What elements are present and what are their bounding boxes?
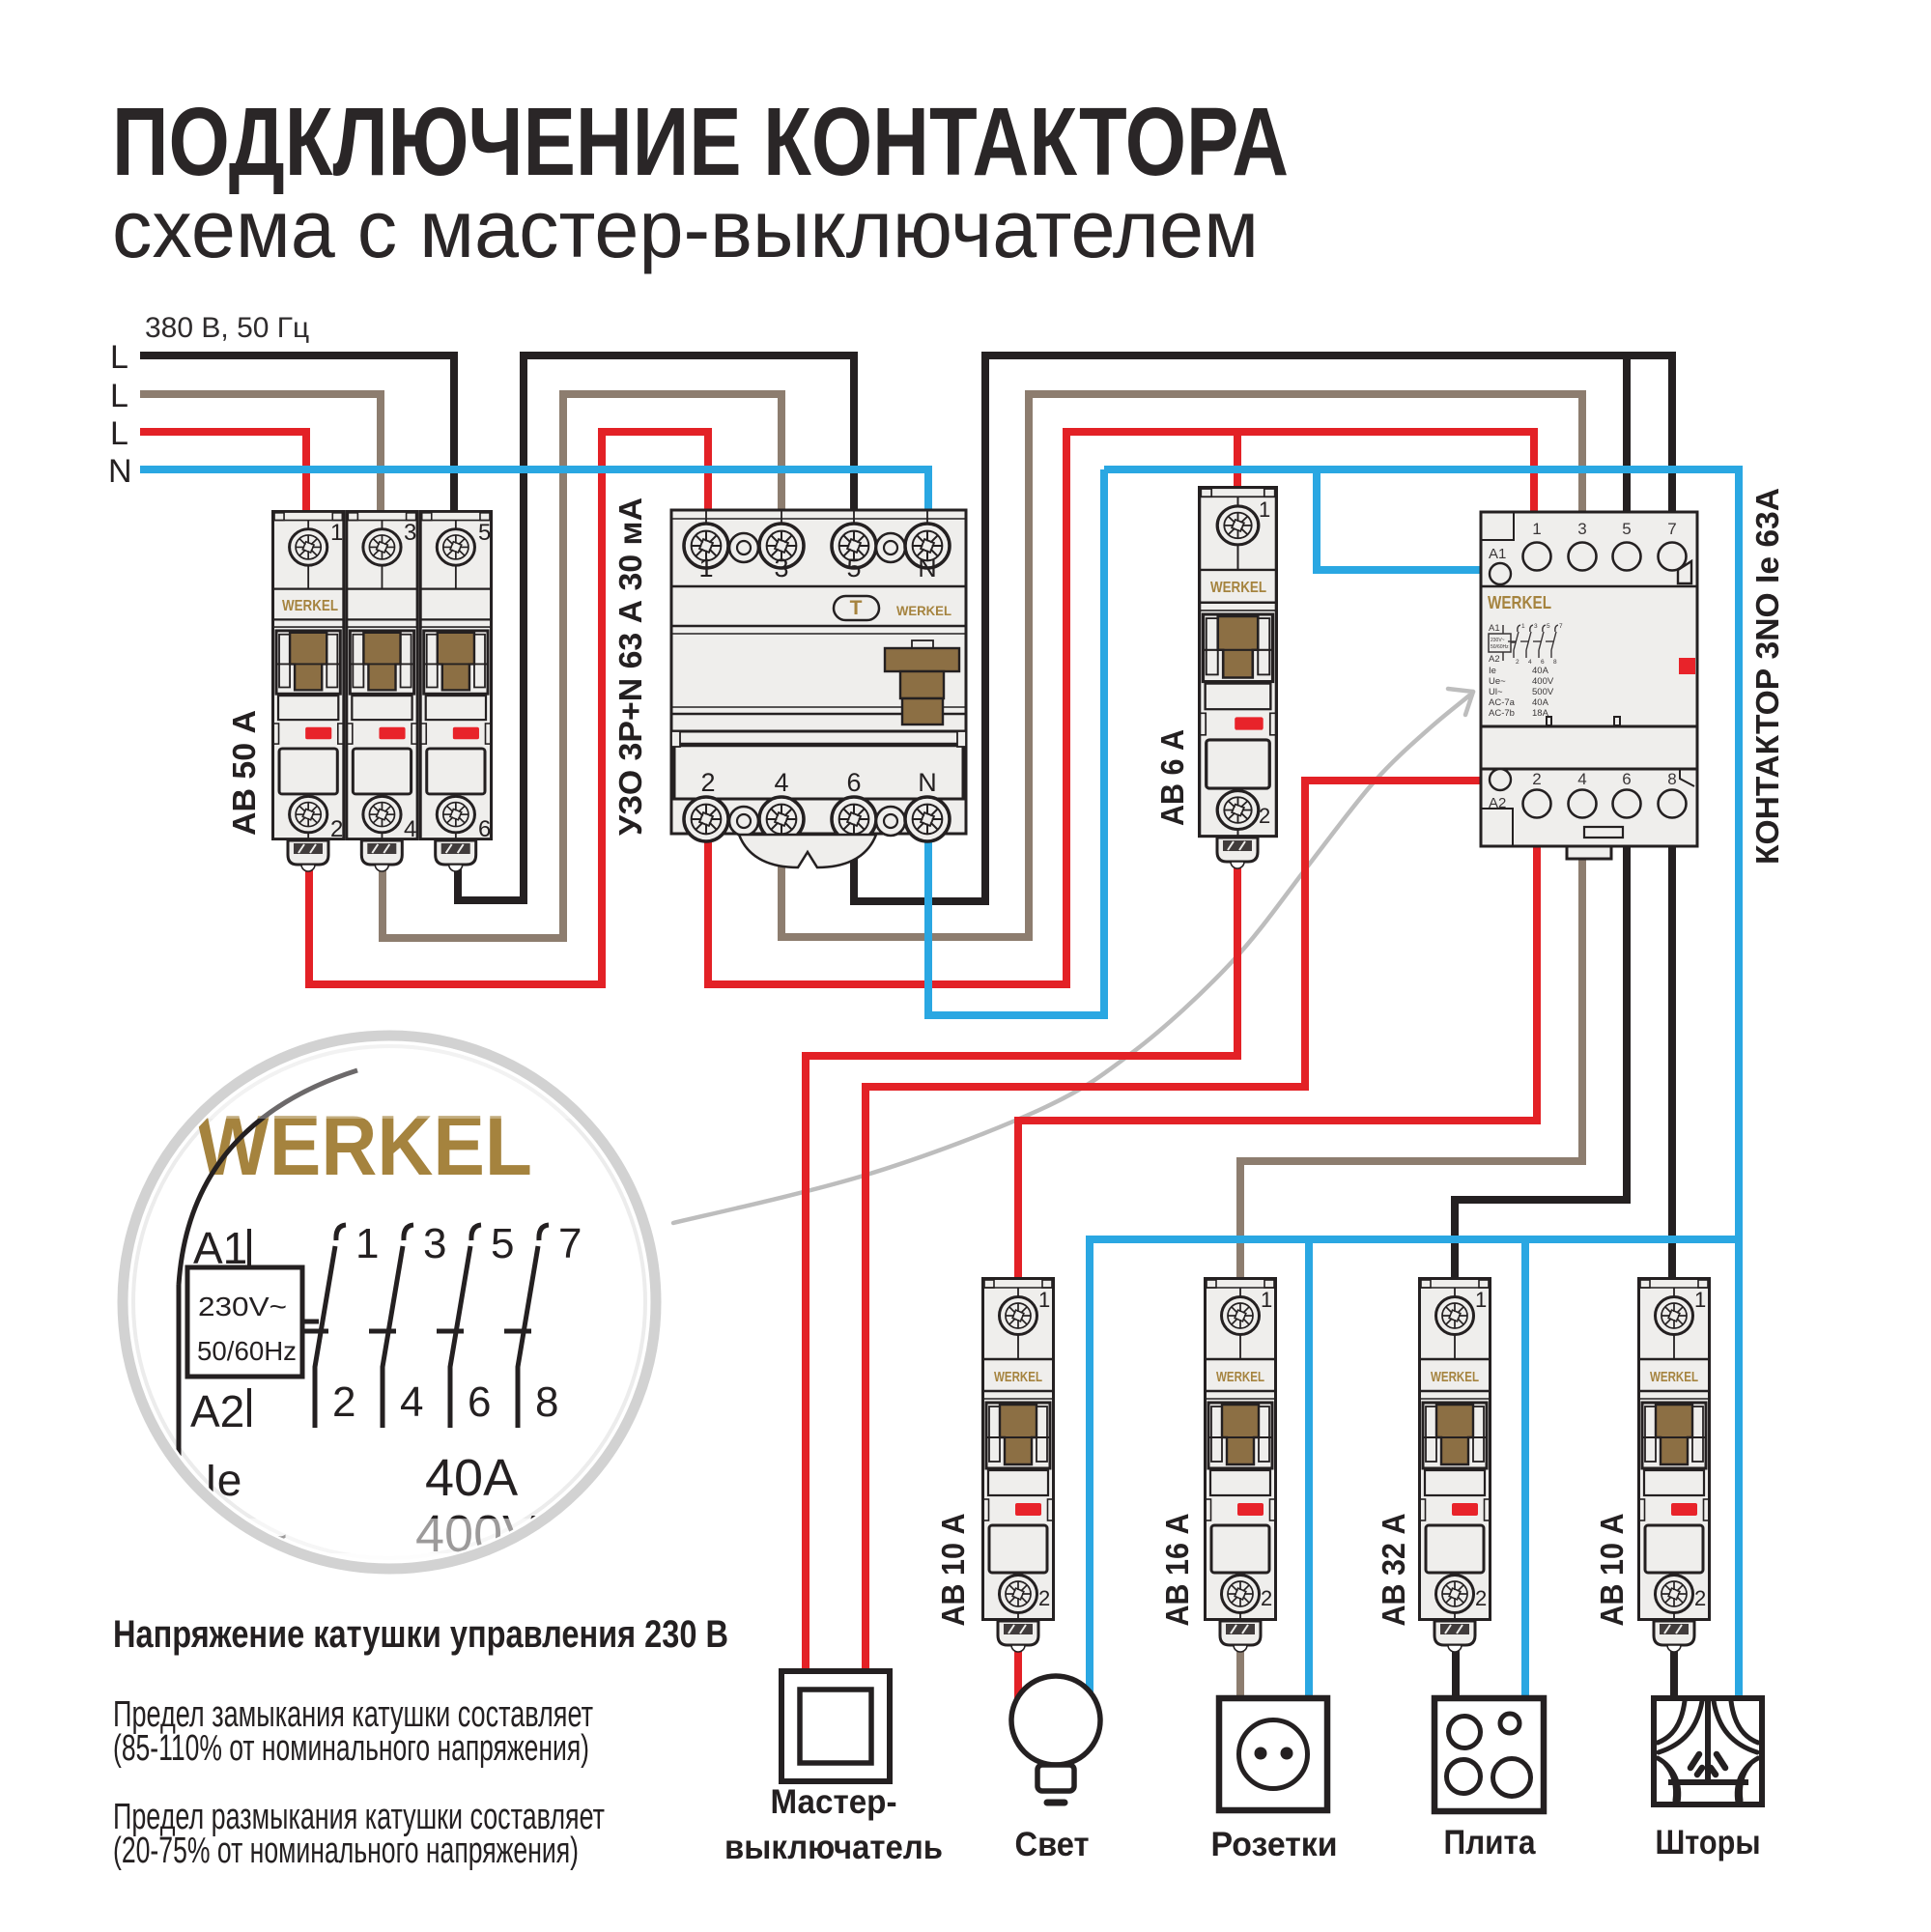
svg-text:Шторы: Шторы bbox=[1656, 1824, 1761, 1861]
svg-text:6: 6 bbox=[478, 816, 491, 842]
svg-text:1: 1 bbox=[1521, 623, 1525, 630]
svg-text:Розетки: Розетки bbox=[1211, 1826, 1338, 1863]
svg-text:A1: A1 bbox=[1489, 623, 1500, 634]
svg-text:Ie: Ie bbox=[1489, 666, 1496, 676]
svg-text:(20-75% от номинального напряж: (20-75% от номинального напряжения) bbox=[113, 1831, 579, 1871]
svg-text:Свет: Свет bbox=[1015, 1826, 1090, 1863]
svg-text:1: 1 bbox=[355, 1220, 379, 1267]
svg-text:АВ 10 А: АВ 10 А bbox=[935, 1514, 971, 1627]
svg-text:7: 7 bbox=[558, 1220, 582, 1267]
svg-text:1: 1 bbox=[1475, 1288, 1487, 1312]
svg-text:АВ 16 А: АВ 16 А bbox=[1159, 1514, 1195, 1627]
svg-text:выключатель: выключатель bbox=[724, 1829, 943, 1866]
svg-text:8: 8 bbox=[535, 1378, 558, 1426]
svg-text:2: 2 bbox=[330, 816, 343, 842]
svg-text:WERKEL: WERKEL bbox=[1488, 593, 1551, 612]
svg-text:4: 4 bbox=[400, 1378, 423, 1426]
svg-text:6: 6 bbox=[1622, 770, 1631, 788]
svg-text:L: L bbox=[110, 415, 128, 452]
svg-text:Напряжение катушки управления: Напряжение катушки управления 230 В bbox=[113, 1613, 728, 1656]
svg-text:4: 4 bbox=[774, 768, 788, 797]
svg-text:6: 6 bbox=[468, 1378, 491, 1426]
svg-text:WERKEL: WERKEL bbox=[1431, 1369, 1479, 1385]
svg-text:A2: A2 bbox=[190, 1386, 244, 1436]
svg-text:A1: A1 bbox=[1489, 546, 1506, 562]
svg-text:1: 1 bbox=[1532, 520, 1541, 538]
svg-text:2: 2 bbox=[1475, 1586, 1487, 1610]
svg-text:3: 3 bbox=[1577, 520, 1586, 538]
svg-text:3: 3 bbox=[774, 554, 788, 582]
svg-text:УЗО 3Р+N 63 А 30 мА: УЗО 3Р+N 63 А 30 мА bbox=[612, 497, 648, 836]
svg-text:L: L bbox=[110, 378, 128, 414]
svg-text:5: 5 bbox=[1547, 623, 1550, 630]
svg-text:1: 1 bbox=[1694, 1288, 1706, 1312]
svg-text:7: 7 bbox=[1667, 520, 1676, 538]
svg-text:WERKEL: WERKEL bbox=[1650, 1369, 1698, 1385]
svg-text:Мастер-: Мастер- bbox=[771, 1783, 897, 1821]
svg-text:1: 1 bbox=[1038, 1288, 1050, 1312]
svg-text:4: 4 bbox=[404, 816, 416, 842]
svg-text:8: 8 bbox=[1553, 659, 1557, 666]
svg-text:L: L bbox=[110, 339, 128, 376]
svg-text:2: 2 bbox=[1261, 1586, 1272, 1610]
svg-text:2: 2 bbox=[1259, 804, 1270, 828]
svg-text:WERKEL: WERKEL bbox=[1210, 580, 1266, 596]
svg-text:7: 7 bbox=[1559, 623, 1563, 630]
svg-text:N: N bbox=[918, 768, 937, 797]
svg-text:5: 5 bbox=[491, 1220, 514, 1267]
svg-text:1: 1 bbox=[330, 520, 343, 546]
svg-text:AC-7b: AC-7b bbox=[1489, 708, 1515, 719]
svg-text:2: 2 bbox=[332, 1378, 355, 1426]
svg-text:Ue~: Ue~ bbox=[1489, 676, 1506, 687]
svg-text:N: N bbox=[918, 554, 937, 582]
svg-text:КОНТАКТОР 3NO Ie 63А: КОНТАКТОР 3NO Ie 63А bbox=[1749, 488, 1785, 865]
svg-text:400V: 400V bbox=[1532, 676, 1554, 687]
svg-text:A2: A2 bbox=[1489, 654, 1500, 665]
svg-text:Плита: Плита bbox=[1444, 1824, 1536, 1861]
svg-text:АВ 32 А: АВ 32 А bbox=[1376, 1514, 1411, 1627]
svg-text:T: T bbox=[850, 597, 863, 619]
svg-text:ПОДКЛЮЧЕНИЕ КОНТАКТОРА: ПОДКЛЮЧЕНИЕ КОНТАКТОРА bbox=[112, 88, 1289, 196]
svg-text:(85-110% от номинального напря: (85-110% от номинального напряжения) bbox=[113, 1728, 589, 1769]
svg-text:WERKEL: WERKEL bbox=[896, 603, 951, 618]
svg-text:N: N bbox=[108, 453, 132, 490]
svg-text:5: 5 bbox=[478, 520, 491, 546]
svg-text:1: 1 bbox=[698, 554, 713, 582]
svg-text:6: 6 bbox=[846, 768, 861, 797]
svg-text:3: 3 bbox=[404, 520, 416, 546]
svg-text:1: 1 bbox=[1259, 497, 1270, 522]
svg-text:4: 4 bbox=[1577, 770, 1586, 788]
svg-text:АВ 50 А: АВ 50 А bbox=[226, 710, 262, 836]
svg-text:5: 5 bbox=[846, 554, 861, 582]
svg-text:6: 6 bbox=[1541, 659, 1545, 666]
svg-text:2: 2 bbox=[1694, 1586, 1706, 1610]
svg-text:AC-7a: AC-7a bbox=[1489, 697, 1516, 708]
svg-text:WERKEL: WERKEL bbox=[282, 598, 338, 614]
svg-text:4: 4 bbox=[1528, 659, 1532, 666]
svg-text:2: 2 bbox=[1516, 659, 1519, 666]
svg-text:380 В, 50 Гц: 380 В, 50 Гц bbox=[145, 312, 309, 344]
svg-text:A2: A2 bbox=[1489, 795, 1506, 811]
svg-text:схема с мастер-выключателем: схема с мастер-выключателем bbox=[112, 184, 1259, 274]
svg-text:40A: 40A bbox=[1532, 697, 1549, 708]
svg-text:5: 5 bbox=[1622, 520, 1631, 538]
svg-text:WERKEL: WERKEL bbox=[1216, 1369, 1264, 1385]
svg-text:8: 8 bbox=[1667, 770, 1676, 788]
svg-text:3: 3 bbox=[1534, 623, 1538, 630]
svg-text:3: 3 bbox=[423, 1220, 446, 1267]
svg-text:230V~: 230V~ bbox=[1491, 638, 1505, 643]
svg-text:WERKEL: WERKEL bbox=[994, 1369, 1042, 1385]
svg-text:1: 1 bbox=[1261, 1288, 1272, 1312]
svg-text:40A: 40A bbox=[1532, 666, 1549, 676]
svg-text:50/60Hz: 50/60Hz bbox=[197, 1336, 297, 1366]
svg-text:2: 2 bbox=[1038, 1586, 1050, 1610]
svg-text:230V~: 230V~ bbox=[198, 1292, 287, 1321]
svg-text:2: 2 bbox=[1532, 770, 1541, 788]
svg-text:50/60Hz: 50/60Hz bbox=[1491, 644, 1509, 650]
svg-text:2: 2 bbox=[700, 768, 715, 797]
svg-text:АВ 6 А: АВ 6 А bbox=[1154, 729, 1190, 826]
svg-text:40A: 40A bbox=[425, 1449, 518, 1507]
svg-text:Ul~: Ul~ bbox=[1489, 687, 1503, 697]
svg-text:500V: 500V bbox=[1532, 687, 1554, 697]
svg-text:АВ 10 А: АВ 10 А bbox=[1594, 1514, 1630, 1627]
